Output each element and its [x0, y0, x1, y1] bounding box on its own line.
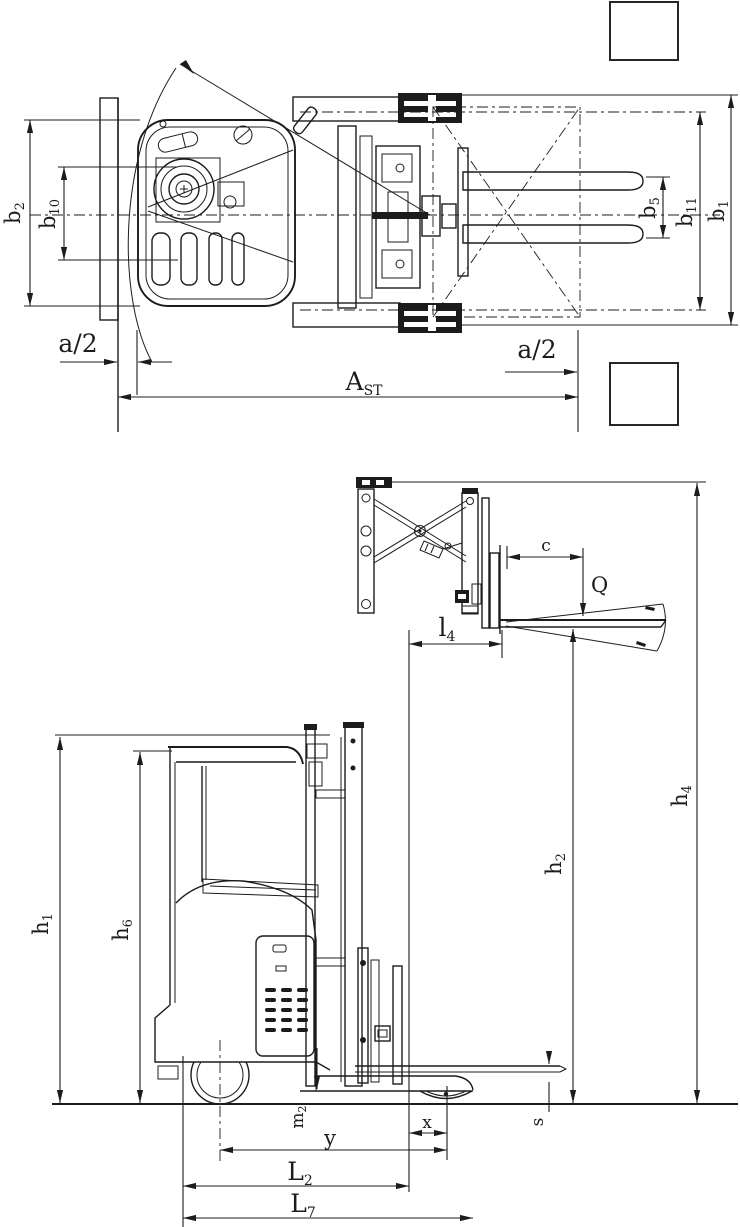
battery-panel	[256, 936, 314, 1056]
dim-label-m2: m2	[288, 1105, 309, 1128]
rack-block-right	[610, 363, 678, 425]
dim-label-l4: l4	[439, 613, 456, 645]
load-label-Q: Q	[591, 573, 608, 597]
lowered-fork	[355, 1066, 566, 1072]
dim-label-h1: h1	[29, 913, 56, 935]
dim-label-b5: b5	[636, 197, 663, 219]
top-view: b2 b10 b5 b11 b1 a/2 a/2 AST	[1, 2, 738, 432]
truck-side	[155, 722, 566, 1163]
forks-top	[463, 172, 643, 243]
wall-left	[100, 98, 118, 432]
dim-label-h6: h6	[109, 919, 136, 941]
lower-carriage	[358, 948, 402, 1084]
body-profile	[155, 881, 330, 1079]
dim-label-h4: h4	[668, 785, 695, 807]
forklift-dimension-drawing: b2 b10 b5 b11 b1 a/2 a/2 AST	[0, 0, 740, 1227]
side-view: c Q l4 h1 h6 h2 h4 m2 s x y L2 L7	[29, 477, 738, 1227]
dim-label-b11: b11	[673, 197, 700, 227]
dim-label-a2-right: a/2	[517, 335, 556, 364]
dim-label-L2: L2	[287, 1157, 313, 1189]
dim-label-ast: AST	[345, 367, 384, 399]
vent-grille	[265, 988, 308, 1032]
dim-label-b2: b2	[1, 202, 28, 224]
dim-label-b1: b1	[705, 200, 732, 222]
load-wheel-top	[398, 93, 462, 123]
dim-label-y: y	[323, 1126, 336, 1150]
tilt-angle-mark-up	[645, 606, 655, 611]
load-wheel-bottom	[398, 303, 462, 333]
turning-radius-arc	[128, 60, 430, 362]
width-dimensions	[30, 95, 731, 325]
dim-label-a2-left: a/2	[58, 329, 97, 358]
dim-label-b10: b10	[36, 199, 63, 229]
pallet-outline	[433, 107, 580, 317]
dim-label-h2: h2	[542, 853, 569, 875]
tilt-angle-mark-down	[636, 641, 646, 647]
dim-label-c: c	[541, 536, 551, 556]
drive-unit-top	[154, 158, 244, 222]
dim-label-s: s	[528, 1118, 548, 1127]
truck-body-top	[138, 120, 295, 306]
dim-label-L7: L7	[290, 1189, 316, 1221]
dim-label-x: x	[422, 1113, 432, 1133]
drive-wheel	[191, 1046, 249, 1104]
aisle-dimensions	[60, 362, 578, 397]
mast-carriage-top	[292, 105, 456, 308]
rack-block-top-right	[610, 2, 678, 60]
mast-side	[304, 722, 364, 1086]
